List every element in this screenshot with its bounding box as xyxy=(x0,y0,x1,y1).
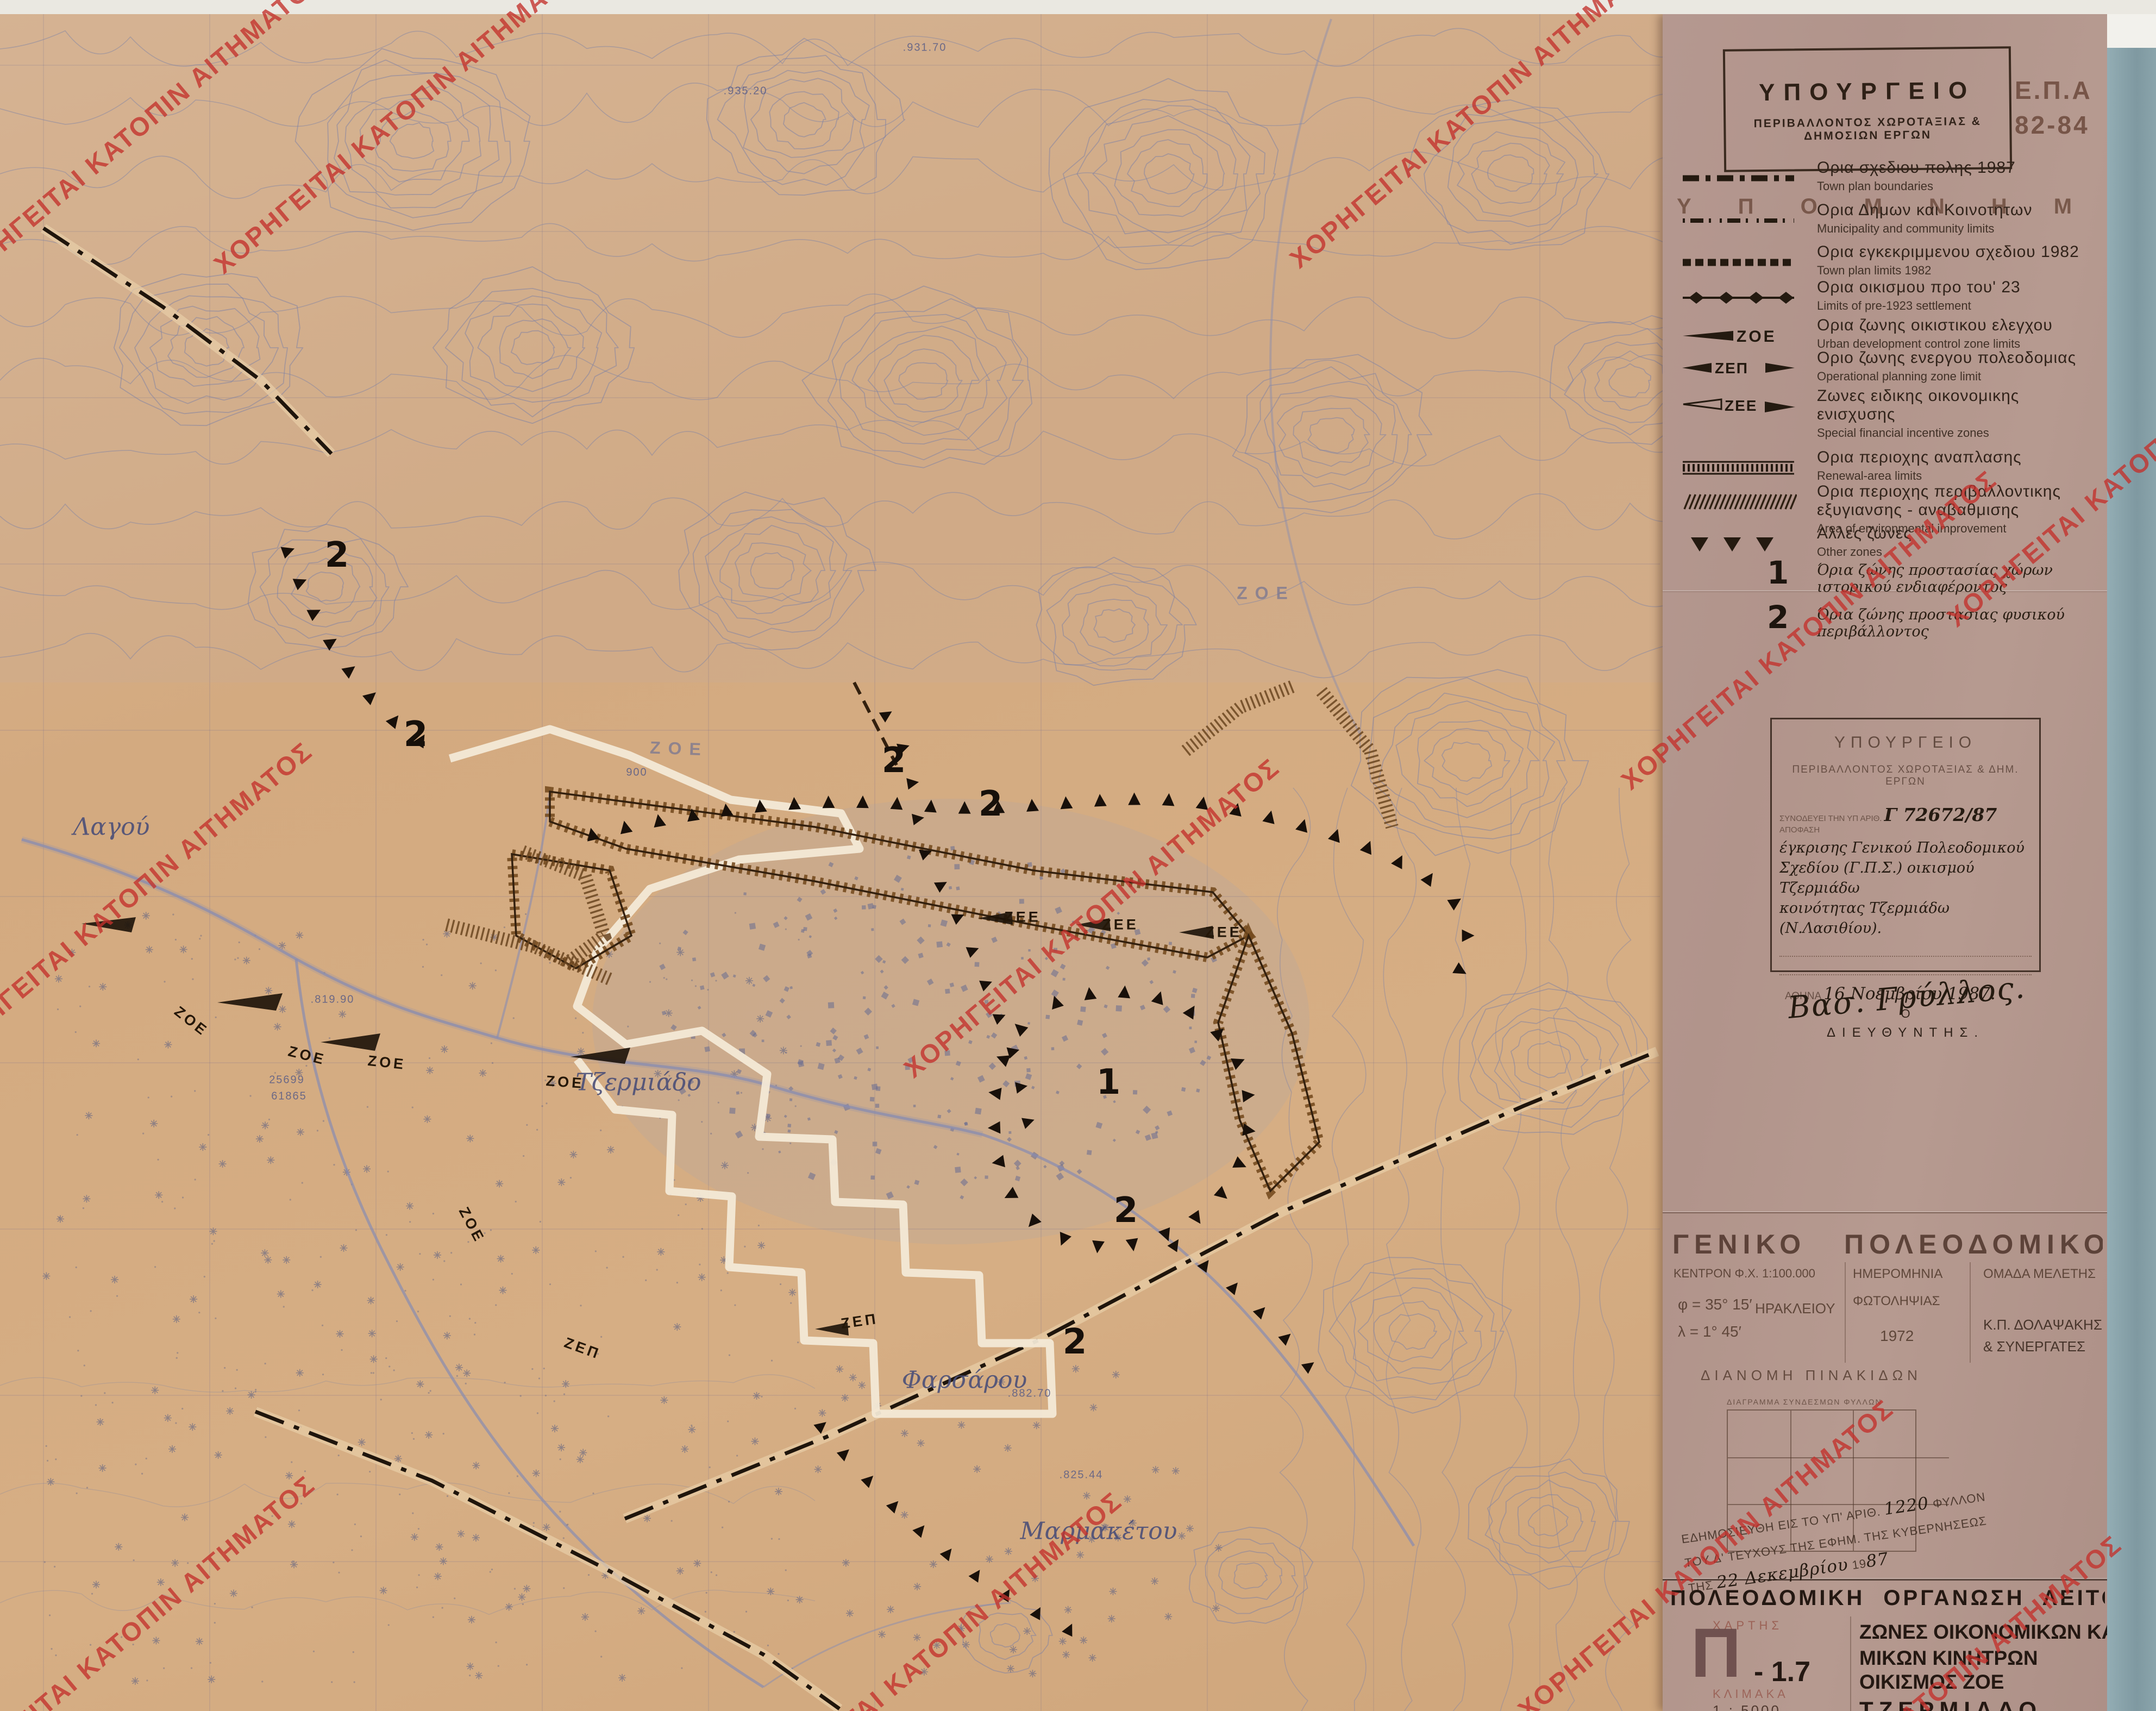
plan-title-block: ΓΕΝΙΚΟ ΠΟΛΕΟΔΟΜΙΚΟ ΣΧΕΔΙΟ ΚΕΝΤΡΟΝ Φ.Χ. 1… xyxy=(1663,1212,2107,1260)
village-name-label: Τζερμιάδο xyxy=(575,1069,701,1096)
approval-director: ΔΙΕΥΘΥΝΤΗΣ. xyxy=(1772,1025,2039,1041)
phi-coordinate: φ = 35° 15′ xyxy=(1678,1296,1752,1313)
legend-symbol-zep: ΖΕΠ xyxy=(1680,352,1797,385)
zone-tag-label: ΖΟΕ xyxy=(546,1073,585,1092)
legend-panel: Ε.Π.Α 82-84 ΥΠΟΥΡΓΕΙΟ ΠΕΡΙΒΑΛΛΟΝΤΟΣ ΧΩΡΟ… xyxy=(1663,14,2107,1711)
plan-title: ΓΕΝΙΚΟ ΠΟΛΕΟΔΟΜΙΚΟ ΣΧΕΔΙΟ xyxy=(1672,1229,2103,1260)
approval-stamp: ΥΠΟΥΡΓΕΙΟ ΠΕΡΙΒΑΛΛΟΝΤΟΣ ΧΩΡΟΤΑΞΙΑΣ & ΔΗΜ… xyxy=(1770,718,2041,972)
legend-label-en: Limits of pre-1923 settlement xyxy=(1817,299,2102,312)
legend-label-gr: Ορια περιοχης αναπλασης xyxy=(1817,448,2102,467)
lambda-coordinate: λ = 1° 45′ xyxy=(1678,1323,1741,1340)
zone-tag-label: ΖΟΕ xyxy=(1237,584,1295,604)
epa-line1: Ε.Π.Α xyxy=(2015,73,2107,108)
approval-subject-line: Σχεδίου (Γ.Π.Σ.) οικισμού Τζερμιάδω xyxy=(1779,858,2032,898)
legend-label-en: Renewal-area limits xyxy=(1817,469,2102,482)
legend-label-en: Municipality and community limits xyxy=(1817,222,2102,235)
legend-label-gr: Ορια Δημων και Κοινοτητων xyxy=(1817,201,2102,220)
elevation-label: .931.70 xyxy=(903,42,947,54)
zone-tag-label: ΖΕΕ xyxy=(1205,924,1242,941)
photo-date-label2: ΦΩΤΟΛΗΨΙΑΣ xyxy=(1853,1294,1940,1309)
elevation-label: .819.90 xyxy=(311,994,355,1006)
approval-reference: ΣΥΝΟΔΕΥΕΙ ΤΗΝ ΥΠ ΑΡΙΘ. Γ 72672/87 ΑΠΟΦΑΣ… xyxy=(1779,804,2034,835)
pub-line1-post: ΦΥΛΛΟΝ xyxy=(1932,1490,1986,1511)
scanned-map-sheet: ▲ ▲ ▲ ▲ ▲ ▲ ▲ ▲ ▲ ▲ ▲ ▲ ▲ ▲ ▲ ▲ ▲ ▲ ▲ ▲ … xyxy=(0,0,2156,1711)
legend-symbol-boundary-1987 xyxy=(1680,162,1797,195)
legend-symbol-pre-1923 xyxy=(1680,281,1797,314)
ministry-title: ΥΠΟΥΡΓΕΙΟ xyxy=(1725,77,2009,106)
legend-symbol-plan-1982 xyxy=(1680,246,1797,279)
map-code-letter: Π xyxy=(1691,1619,1741,1688)
legend-symbol-zoe: ΖΟΕ xyxy=(1680,319,1797,352)
protection-zone-number: 2 xyxy=(1063,1322,1087,1362)
svg-text:ΖΕΕ: ΖΕΕ xyxy=(1725,397,1757,414)
protection-zone-number: 2 xyxy=(979,784,1003,824)
pub-year-hand: 87 xyxy=(1865,1549,1890,1571)
study-team-name2: & ΣΥΝΕΡΓΑΤΕΣ xyxy=(1983,1338,2085,1355)
legend-item: Ορια οικισμου προ του' 23Limits of pre-1… xyxy=(1680,281,2098,321)
approval-subject: έγκρισης Γενικού Πολεοδομικού Σχεδίου (Γ… xyxy=(1779,838,2032,938)
legend-item: ΖΕΠΟριο ζωνης ενεργου πολεοδομιαςOperati… xyxy=(1680,352,2098,391)
legend-label-gr: Ορια ζωνης οικιστικου ελεγχου xyxy=(1817,316,2102,335)
legend-zone-number: 1 xyxy=(1767,554,1789,591)
kentron-label: ΚΕΝΤΡΟΝ Φ.Χ. 1:100.000 xyxy=(1674,1267,1815,1281)
pub-sheet-number: 1220 xyxy=(1883,1494,1930,1519)
legend-label-en: Operational planning zone limit xyxy=(1817,370,2102,383)
zone-tag-label: ΖΕΠ xyxy=(840,1311,880,1332)
map-code-number: - 1.7 xyxy=(1754,1656,1810,1688)
legend-item: Ορια σχεδιου πολης 1987Town plan boundar… xyxy=(1680,162,2098,201)
ministry-subtitle: ΠΕΡΙΒΑΛΛΟΝΤΟΣ ΧΩΡΟΤΑΞΙΑΣ & ΔΗΜΟΣΙΩΝ ΕΡΓΩ… xyxy=(1726,115,2009,143)
study-team-name: Κ.Π. ΔΟΛΑΨΑΚΗΣ xyxy=(1983,1317,2102,1333)
elevation-label: 25699 xyxy=(269,1074,305,1087)
legend-label-en: Town plan boundaries xyxy=(1817,180,2102,193)
ministry-stamp: ΥΠΟΥΡΓΕΙΟ ΠΕΡΙΒΑΛΛΟΝΤΟΣ ΧΩΡΟΤΑΞΙΑΣ & ΔΗΜ… xyxy=(1723,46,2012,172)
legend-label-gr: Ορια εγκεκριμμενου σχεδιου 1982 xyxy=(1817,243,2102,261)
approval-ministry: ΥΠΟΥΡΓΕΙΟ xyxy=(1772,734,2039,752)
scan-top-edge xyxy=(0,0,2156,14)
legend-label-gr: Οριο ζωνης ενεργου πολεοδομιας xyxy=(1817,349,2102,367)
ruled-line xyxy=(1779,944,2032,957)
table-divider xyxy=(1845,1262,1846,1363)
legend-label-en: Town plan limits 1982 xyxy=(1817,264,2102,277)
zone-tag-label: ΖΟΕ xyxy=(286,1043,328,1068)
photo-date-label1: ΗΜΕΡΟΜΗΝΙΑ xyxy=(1853,1267,1942,1282)
plan-info-table: ΚΕΝΤΡΟΝ Φ.Χ. 1:100.000 φ = 35° 15′ ΗΡΑΚΛ… xyxy=(1663,1262,2107,1365)
elevation-label: 900 xyxy=(626,767,647,779)
table-divider xyxy=(1970,1262,1971,1363)
pub-year-print: 19 xyxy=(1851,1557,1867,1572)
legend-symbol-zee: ΖΕΕ xyxy=(1680,390,1797,423)
village-name-label: Λαγού xyxy=(73,813,149,841)
sheet-distribution-label: ΔΙΑΝΟΜΗ ΠΙΝΑΚΙΔΩΝ xyxy=(1701,1367,1922,1384)
protection-zone-number: 2 xyxy=(404,715,428,755)
legend-item: ΖΕΕΖωνες ειδικης οικονομικης ενισχυσηςSp… xyxy=(1680,390,2098,429)
legend-label-gr: Ορια σχεδιου πολης 1987 xyxy=(1817,159,2102,177)
approval-subject-line: κοινότητας Τζερμιάδω (Ν.Λασιθίου). xyxy=(1779,898,2032,938)
study-team-label: ΟΜΑΔΑ ΜΕΛΕΤΗΣ xyxy=(1983,1267,2096,1282)
legend-label-gr: Ορια οικισμου προ του' 23 xyxy=(1817,278,2102,297)
legend-item: Ορια Δημων και ΚοινοτητωνMunicipality an… xyxy=(1680,204,2098,243)
legend-label-en: Special financial incentive zones xyxy=(1817,427,2102,440)
protection-zone-number: 2 xyxy=(882,741,906,781)
elevation-label: .882.70 xyxy=(1008,1388,1052,1400)
scan-background-strip xyxy=(2107,0,2156,1711)
scale-label: ΚΛΙΜΑΚΑ xyxy=(1713,1687,1789,1701)
approval-subject-line: έγκρισης Γενικού Πολεοδομικού xyxy=(1779,838,2032,858)
zone-tag-label: ΖΟΕ xyxy=(171,1003,212,1040)
elevation-label: .935.20 xyxy=(724,85,768,98)
zone-tag-label: ΖΕΠ xyxy=(562,1334,603,1363)
legend-label-gr: Ζωνες ειδικης οικονομικης ενισχυσης xyxy=(1817,387,2102,424)
svg-text:ΖΕΠ: ΖΕΠ xyxy=(1715,360,1748,377)
legend-hand-item: 2Όρια ζώνης προστασίας φυσικού περιβάλλο… xyxy=(1680,606,2098,645)
zone-tag-label: ΖΟΕ xyxy=(455,1205,488,1246)
zone-tag-label: ΖΟΕ xyxy=(649,738,709,760)
approval-ref-suffix: ΑΠΟΦΑΣΗ xyxy=(1779,825,1820,835)
elevation-label: 61865 xyxy=(271,1090,307,1103)
protection-zone-number: 2 xyxy=(1114,1190,1138,1231)
epa-line2: 82-84 xyxy=(2015,108,2107,142)
approval-ref-number: Γ 72672/87 xyxy=(1884,804,1997,825)
region-name: ΗΡΑΚΛΕΙΟΥ xyxy=(1755,1300,1835,1317)
table-divider xyxy=(1850,1616,1851,1711)
scale-value: 1 : 5000 xyxy=(1713,1702,1781,1711)
epa-code: Ε.Π.Α 82-84 xyxy=(2015,73,2107,142)
protection-zone-number: 2 xyxy=(325,535,349,575)
legend-symbol-municipality xyxy=(1680,204,1797,237)
zone-tag-label: ΖΕΕ xyxy=(1004,909,1041,926)
approval-ministry-sub: ΠΕΡΙΒΑΛΛΟΝΤΟΣ ΧΩΡΟΤΑΞΙΑΣ & ΔΗΜ. ΕΡΓΩΝ xyxy=(1772,764,2039,788)
zone-tag-label: ΖΟΕ xyxy=(367,1052,406,1073)
legend-item: Ορια περιοχης περιβαλλοντικης εξυγιανσης… xyxy=(1680,486,2098,525)
legend-symbol-renewal xyxy=(1680,452,1797,484)
elevation-label: .825.44 xyxy=(1060,1469,1104,1482)
legend-symbol-environment xyxy=(1680,486,1797,518)
protection-zone-number: 1 xyxy=(1096,1062,1121,1102)
sheet-diagram-caption: ΔΙΑΓΡΑΜΜΑ ΣΥΝΔΕΣΜΩΝ ΦΥΛΛΩΝ xyxy=(1727,1397,1882,1406)
photo-date-value: 1972 xyxy=(1880,1327,1914,1345)
approval-ref-prefix: ΣΥΝΟΔΕΥΕΙ ΤΗΝ ΥΠ ΑΡΙΘ. xyxy=(1779,814,1882,823)
svg-text:ΖΟΕ: ΖΟΕ xyxy=(1737,328,1777,346)
